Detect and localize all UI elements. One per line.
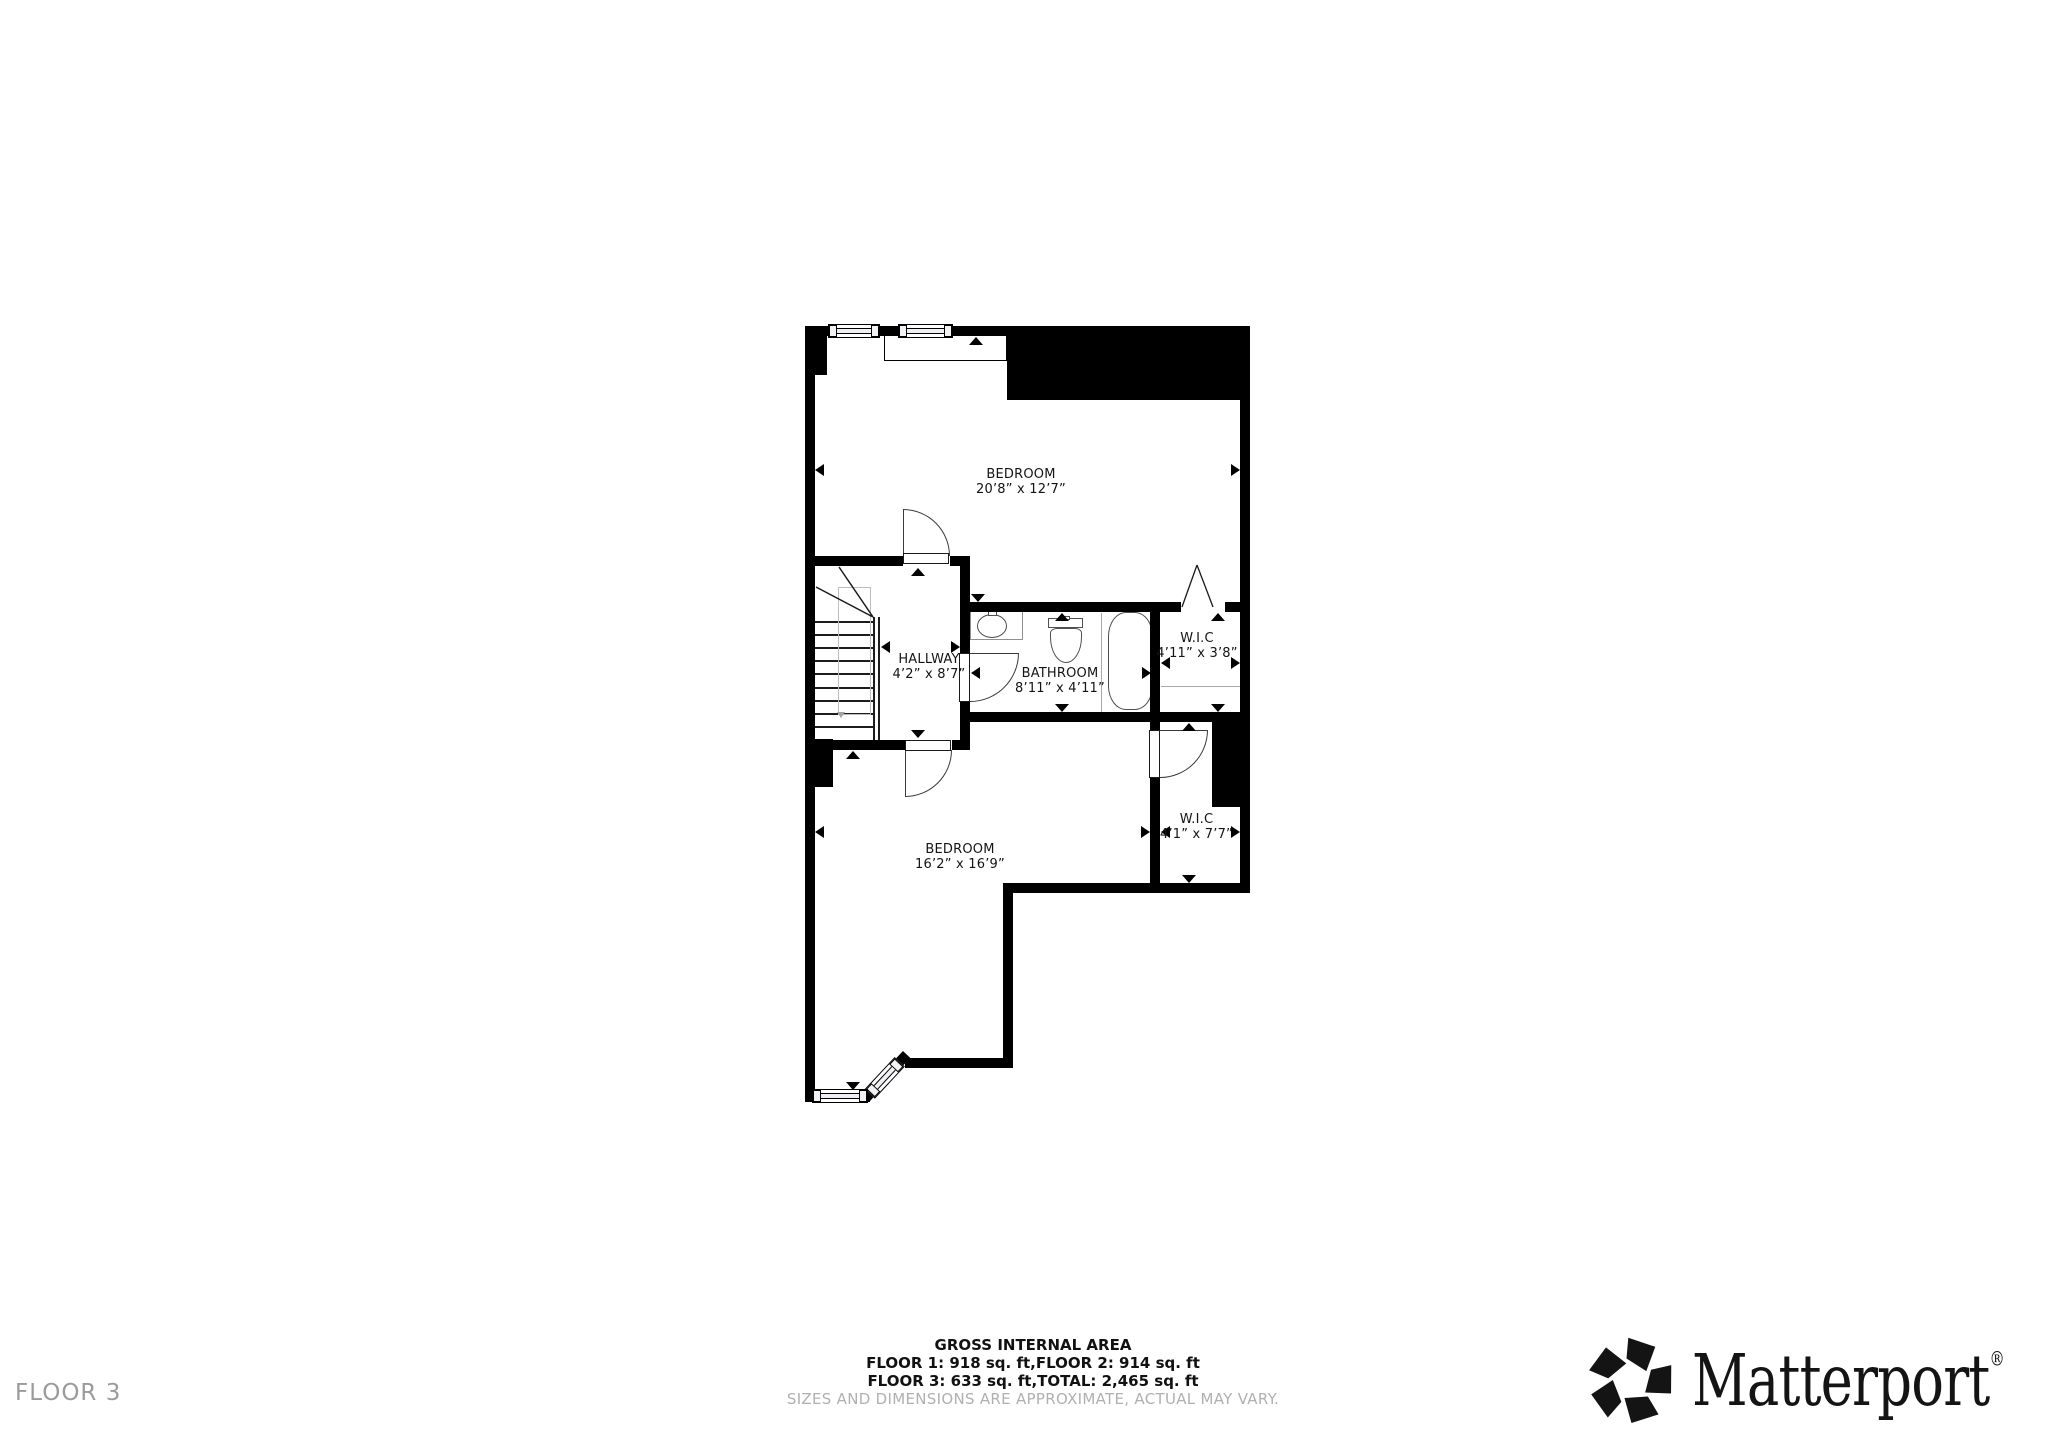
room-name: BEDROOM (921, 467, 1121, 482)
floorplan: BEDROOM 20’8” x 12’7” HALLWAY 4’2” x 8’7… (805, 326, 1250, 1102)
room-name: BATHROOM (980, 666, 1140, 681)
room-label-bedroom1: BEDROOM 20’8” x 12’7” (921, 467, 1121, 497)
disclaimer-text: SIZES AND DIMENSIONS ARE APPROXIMATE, AC… (733, 1390, 1333, 1408)
dim-arrow-right-bathroom (1142, 667, 1151, 679)
dim-arrow-left-bedroom1 (815, 464, 824, 476)
dim-arrow-down-bathroom (1055, 704, 1069, 712)
dim-arrow-down-hallway (911, 730, 925, 738)
dim-arrow-up-wic1 (1211, 613, 1225, 621)
floor-tag: FLOOR 3 (15, 1380, 121, 1406)
room-dimensions: 4’11” x 3’8” (1137, 646, 1257, 661)
gross-area-title: GROSS INTERNAL AREA (733, 1336, 1333, 1354)
dim-arrow-left-bedroom2 (815, 826, 824, 838)
window-frame-cap (859, 1090, 867, 1102)
door-leaf-bedroom1 (903, 553, 949, 564)
window-glass (821, 1093, 859, 1099)
floorplan-page: BEDROOM 20’8” x 12’7” HALLWAY 4’2” x 8’7… (0, 0, 2048, 1448)
stair-winder-line (816, 587, 873, 617)
dim-arrow-down-wic1 (1211, 704, 1225, 712)
window-glass (907, 328, 944, 334)
dim-arrow-down-bedroom2 (846, 1082, 860, 1090)
matterport-wordmark: Matterport® (1692, 1340, 2005, 1422)
room-dimensions: 16’2” x 16’9” (860, 857, 1060, 872)
room-name: BEDROOM (860, 842, 1060, 857)
door-leaf-wic2 (1149, 730, 1160, 778)
gross-area-line2: FLOOR 3: 633 sq. ft,TOTAL: 2,465 sq. ft (733, 1372, 1333, 1390)
window-top-2 (898, 324, 953, 338)
room-name: W.I.C (1134, 812, 1259, 827)
room-label-wic2: W.I.C 4’1” x 7’7” (1134, 812, 1259, 842)
window-top-1 (828, 324, 880, 338)
room-dimensions: 4’1” x 7’7” (1134, 827, 1259, 842)
dim-arrow-right-bedroom1 (1231, 464, 1240, 476)
dim-arrow-up-bathroom (1055, 613, 1069, 621)
matterport-branding: Matterport® (1586, 1334, 2048, 1428)
room-label-bathroom: BATHROOM 8’11” x 4’11” (980, 666, 1140, 696)
room-name: HALLWAY (849, 652, 1009, 667)
bifold-door-line (1182, 565, 1197, 607)
matterport-logo-icon (1586, 1336, 1676, 1426)
dim-arrow-down-wic2 (1182, 875, 1196, 883)
window-frame-cap (899, 325, 907, 337)
dim-arrow-up-bedroom2 (846, 751, 860, 759)
registered-trademark-symbol: ® (1990, 1347, 2005, 1370)
room-label-wic1: W.I.C 4’11” x 3’8” (1137, 631, 1257, 661)
stair-winder-line (839, 567, 873, 617)
dim-arrow-down-bedroom1 (971, 594, 985, 602)
window-bottom (812, 1089, 868, 1103)
dim-arrow-up-bedroom1 (969, 337, 983, 345)
bifold-door-line (1197, 565, 1213, 607)
matterport-logo-text: Matterport (1692, 1340, 1990, 1422)
dim-arrow-up-hallway (911, 568, 925, 576)
room-dimensions: 20’8” x 12’7” (921, 482, 1121, 497)
room-dimensions: 8’11” x 4’11” (980, 681, 1140, 696)
plan-detail-lines (805, 326, 1250, 1102)
room-label-bedroom2: BEDROOM 16’2” x 16’9” (860, 842, 1060, 872)
room-name: W.I.C (1137, 631, 1257, 646)
window-frame-cap (871, 325, 879, 337)
gross-area-line1: FLOOR 1: 918 sq. ft,FLOOR 2: 914 sq. ft (733, 1354, 1333, 1372)
gross-area-summary: GROSS INTERNAL AREA FLOOR 1: 918 sq. ft,… (733, 1336, 1333, 1408)
window-frame-cap (944, 325, 952, 337)
window-glass (837, 328, 871, 334)
window-frame-cap (829, 325, 837, 337)
door-leaf-bedroom2 (905, 740, 951, 751)
window-frame-cap (813, 1090, 821, 1102)
dim-arrow-up-wic2 (1182, 723, 1196, 731)
